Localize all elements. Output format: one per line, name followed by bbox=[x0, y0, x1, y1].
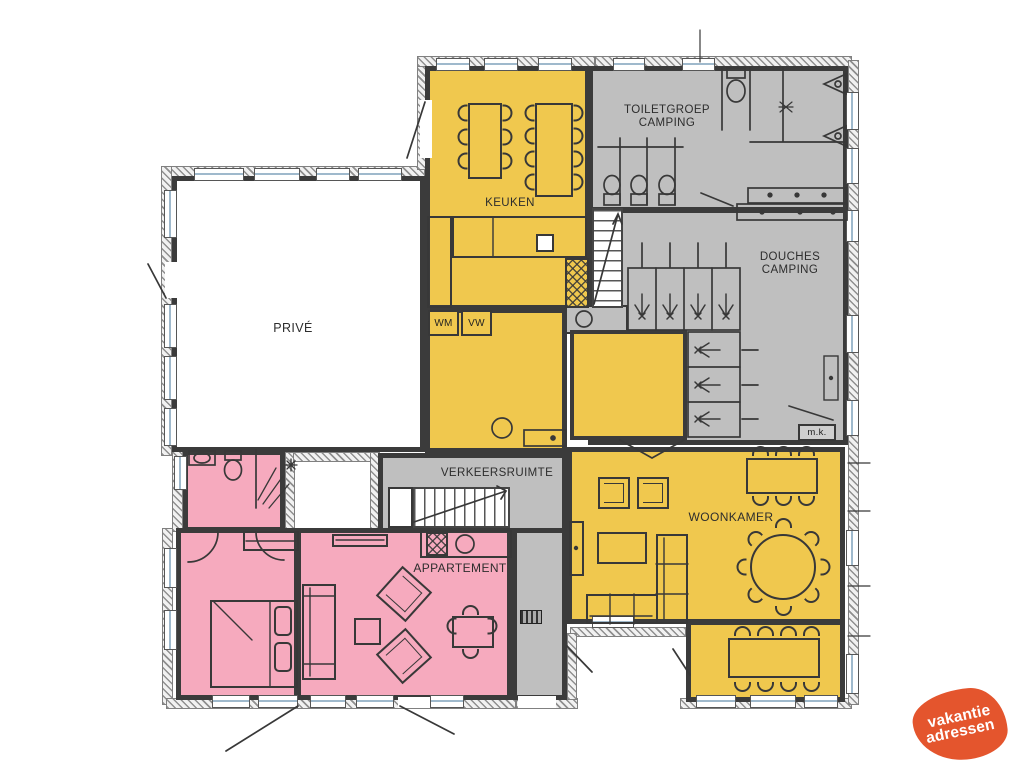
douches-line2: CAMPING bbox=[760, 264, 820, 277]
washing-machine: WM bbox=[428, 310, 459, 336]
window bbox=[356, 695, 394, 708]
toiletgroep-line2: CAMPING bbox=[624, 117, 710, 130]
armchair bbox=[637, 477, 669, 509]
chair bbox=[734, 626, 751, 636]
toiletgroep-line1: TOILETGROEP bbox=[624, 104, 710, 117]
dining-table bbox=[535, 103, 573, 197]
round-table bbox=[750, 534, 816, 600]
chair bbox=[458, 129, 468, 146]
window bbox=[750, 695, 796, 708]
chair bbox=[525, 128, 535, 145]
chair bbox=[752, 446, 769, 456]
window bbox=[174, 456, 187, 490]
armchair bbox=[598, 477, 630, 509]
room-prive bbox=[172, 176, 425, 452]
tv-cabinet bbox=[569, 521, 584, 576]
armchair-cushion bbox=[386, 576, 423, 613]
chair bbox=[525, 151, 535, 168]
door-gap bbox=[398, 697, 430, 708]
entrance-door-gap bbox=[518, 696, 556, 708]
chair bbox=[525, 105, 535, 122]
wardrobe bbox=[243, 531, 299, 551]
window bbox=[164, 610, 177, 650]
stair-closet bbox=[388, 487, 413, 528]
room-label-woonkamer: WOONKAMER bbox=[689, 510, 774, 524]
kitchen-sink-unit bbox=[536, 234, 554, 252]
window bbox=[846, 654, 859, 694]
dining-table bbox=[746, 458, 818, 494]
window bbox=[164, 356, 177, 400]
chair bbox=[757, 626, 774, 636]
window bbox=[538, 58, 572, 71]
window bbox=[682, 58, 715, 71]
doormat bbox=[520, 610, 542, 624]
room-label-appartement: APPARTEMENT bbox=[413, 561, 506, 575]
window bbox=[804, 695, 838, 708]
window bbox=[430, 695, 464, 708]
window bbox=[846, 148, 859, 184]
sofa bbox=[586, 594, 658, 624]
window bbox=[358, 168, 402, 181]
douches-line1: DOUCHES bbox=[760, 251, 820, 264]
window bbox=[258, 695, 298, 708]
chair bbox=[525, 174, 535, 191]
window bbox=[846, 530, 859, 566]
room-toiletgroep-camping bbox=[588, 66, 848, 212]
window bbox=[846, 400, 859, 436]
window bbox=[164, 190, 177, 238]
apartment-bathroom bbox=[183, 450, 285, 532]
window bbox=[696, 695, 736, 708]
sofa bbox=[656, 534, 688, 624]
chair bbox=[447, 618, 457, 635]
room-label-prive: PRIVÉ bbox=[273, 321, 313, 335]
dining-table bbox=[728, 638, 820, 678]
window bbox=[316, 168, 350, 181]
window bbox=[212, 695, 250, 708]
side-table bbox=[354, 618, 381, 645]
floorplan-canvas: WM VW m.k. bbox=[0, 0, 1024, 768]
staircase-sanitary bbox=[592, 208, 623, 308]
cooktop bbox=[426, 532, 448, 556]
pillow bbox=[274, 642, 292, 672]
staircase-verkeersruimte bbox=[412, 487, 510, 528]
sofa bbox=[302, 584, 336, 680]
vw-label: VW bbox=[468, 318, 485, 329]
exterior-wall-hatch bbox=[285, 452, 295, 530]
window bbox=[164, 408, 177, 446]
mk-label: m.k. bbox=[807, 427, 826, 438]
chair bbox=[780, 626, 797, 636]
exterior-wall-hatch bbox=[570, 627, 686, 637]
room-label-keuken: KEUKEN bbox=[485, 197, 535, 209]
room-label-verkeersruimte: VERKEERSRUIMTE bbox=[441, 467, 553, 479]
mk-closet: m.k. bbox=[798, 424, 836, 441]
chair bbox=[737, 559, 747, 576]
room-b-sanitary bbox=[570, 330, 687, 440]
kitchen-counter bbox=[452, 216, 587, 258]
chair bbox=[775, 518, 792, 528]
exterior-wall-hatch bbox=[567, 633, 577, 700]
chair bbox=[458, 153, 468, 170]
armchair-cushion bbox=[386, 638, 423, 675]
door-gap bbox=[165, 262, 177, 298]
keuken-door-gap bbox=[420, 100, 432, 158]
exterior-wall-hatch bbox=[293, 452, 380, 462]
armchair-cushion bbox=[604, 483, 624, 503]
window bbox=[846, 210, 859, 242]
coffee-table bbox=[597, 532, 647, 564]
window bbox=[846, 92, 859, 130]
vakantieadressen-logo: vakantie adressen bbox=[910, 685, 1010, 764]
room-label-toiletgroep: TOILETGROEP CAMPING bbox=[624, 104, 710, 130]
cooktop bbox=[565, 258, 589, 308]
window bbox=[194, 168, 244, 181]
window bbox=[310, 695, 346, 708]
dryer: VW bbox=[461, 310, 492, 336]
window bbox=[436, 58, 470, 71]
chair bbox=[803, 626, 820, 636]
pillow bbox=[274, 606, 292, 636]
kitchen-counter bbox=[427, 216, 452, 308]
window bbox=[164, 304, 177, 348]
window bbox=[484, 58, 518, 71]
window bbox=[254, 168, 300, 181]
chair bbox=[798, 446, 815, 456]
dining-table bbox=[468, 103, 502, 179]
chair bbox=[458, 105, 468, 122]
armchair-cushion bbox=[643, 483, 663, 503]
chair bbox=[775, 446, 792, 456]
window bbox=[846, 315, 859, 353]
sideboard bbox=[332, 534, 388, 547]
wm-label: WM bbox=[434, 318, 452, 329]
chair bbox=[462, 605, 479, 615]
room-label-douches: DOUCHES CAMPING bbox=[760, 251, 820, 277]
window bbox=[613, 58, 645, 71]
window bbox=[164, 548, 177, 588]
